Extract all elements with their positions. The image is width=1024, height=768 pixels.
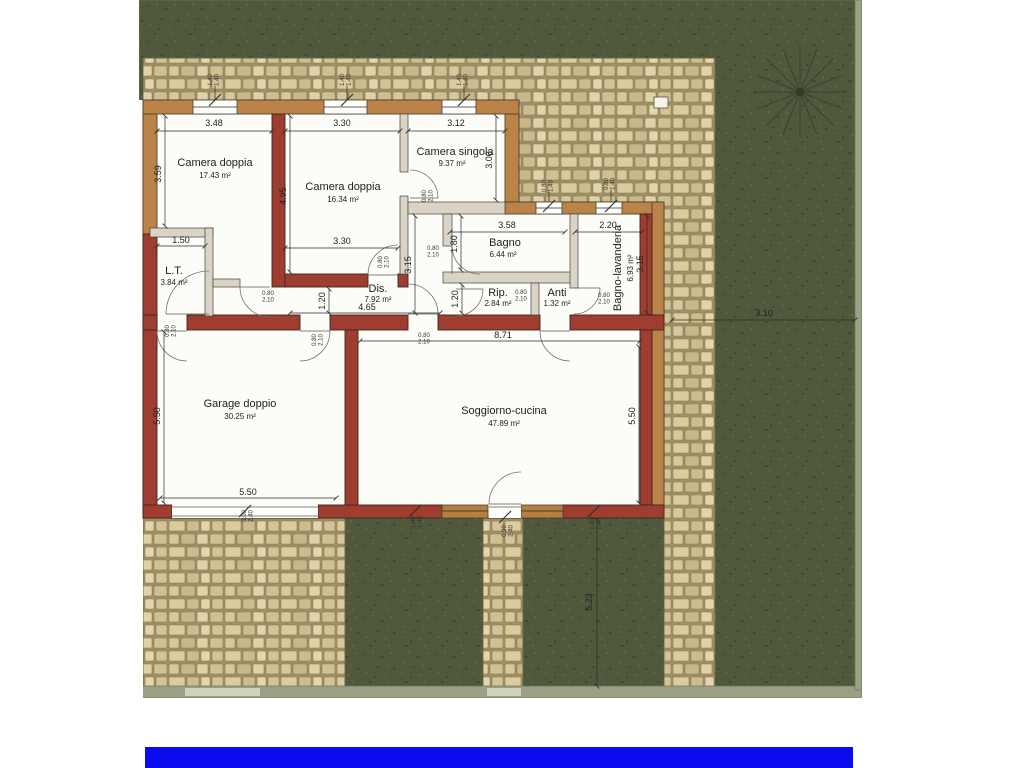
room-dis: Dis. [369, 283, 388, 295]
svg-text:1.40: 1.40 [457, 74, 463, 86]
room-garage: Garage doppio [204, 398, 277, 410]
site-plan-drawing: Camera doppia 17.43 m² Camera doppia 16.… [0, 0, 1024, 768]
svg-text:3.15: 3.15 [635, 255, 645, 273]
room-bagno-lavanderia: Bagno-lavanderia [612, 224, 624, 311]
entrance-opening [489, 505, 521, 518]
svg-text:3.30: 3.30 [333, 118, 351, 128]
svg-text:4.65: 4.65 [358, 302, 376, 312]
svg-text:2.84 m²: 2.84 m² [484, 299, 511, 308]
svg-text:2.40: 2.40 [509, 525, 515, 537]
room-camera-singola: Camera singola [416, 146, 494, 158]
svg-text:2.10: 2.10 [385, 256, 391, 268]
svg-text:3.58: 3.58 [498, 220, 516, 230]
svg-text:3.48: 3.48 [205, 118, 223, 128]
room-rip: Rip. [488, 287, 508, 299]
svg-text:2.10: 2.10 [429, 190, 435, 202]
boundary-gap [185, 688, 260, 696]
svg-text:5.23: 5.23 [584, 593, 594, 611]
svg-text:8.71: 8.71 [494, 330, 512, 340]
svg-text:3.00: 3.00 [484, 151, 494, 169]
svg-text:47.89 m²: 47.89 m² [488, 419, 520, 428]
svg-text:1.40: 1.40 [215, 74, 221, 86]
svg-text:3.84 m²: 3.84 m² [160, 278, 187, 287]
svg-text:6.93 m²: 6.93 m² [626, 254, 635, 281]
margin-right [862, 0, 1024, 768]
svg-text:2.10: 2.10 [515, 297, 527, 303]
svg-text:1.40: 1.40 [418, 516, 424, 528]
svg-text:2.10: 2.10 [172, 325, 178, 337]
svg-text:1.20: 1.20 [317, 292, 327, 310]
svg-text:3.00: 3.00 [242, 510, 248, 522]
svg-text:1.40: 1.40 [590, 518, 596, 530]
tree-icon [754, 46, 846, 138]
svg-text:0.80: 0.80 [262, 291, 274, 297]
svg-text:9.37 m²: 9.37 m² [438, 159, 465, 168]
svg-text:0.80: 0.80 [427, 246, 439, 252]
svg-text:1.50: 1.50 [172, 235, 190, 245]
svg-text:0.80: 0.80 [378, 256, 384, 268]
svg-text:1.40: 1.40 [347, 74, 353, 86]
room-soggiorno: Soggiorno-cucina [461, 405, 547, 417]
site-boundary-right [855, 0, 862, 690]
svg-text:3.59: 3.59 [153, 165, 163, 183]
gate-pillar [654, 97, 668, 108]
svg-text:1.40: 1.40 [597, 518, 603, 530]
svg-text:1.40: 1.40 [340, 74, 346, 86]
stone-paving-path [483, 518, 523, 690]
footer-blue-bar [145, 747, 853, 768]
boundary-gap [487, 688, 521, 696]
svg-text:3.15: 3.15 [403, 256, 413, 274]
svg-text:1.32 m²: 1.32 m² [543, 299, 570, 308]
svg-text:0.80: 0.80 [312, 334, 318, 346]
svg-text:0.80: 0.80 [422, 190, 428, 202]
svg-text:5.50: 5.50 [152, 407, 162, 425]
svg-text:1.40: 1.40 [464, 74, 470, 86]
svg-text:1.40: 1.40 [549, 180, 555, 192]
svg-text:0.80: 0.80 [604, 178, 610, 190]
svg-text:2.10: 2.10 [427, 253, 439, 259]
svg-text:0.80: 0.80 [418, 333, 430, 339]
svg-text:6.44 m²: 6.44 m² [489, 250, 516, 259]
svg-text:30.25 m²: 30.25 m² [224, 412, 256, 421]
svg-text:17.43 m²: 17.43 m² [199, 171, 231, 180]
svg-text:0.80: 0.80 [165, 325, 171, 337]
svg-text:0.80: 0.80 [542, 180, 548, 192]
svg-text:2.10: 2.10 [319, 334, 325, 346]
svg-text:3.30: 3.30 [333, 236, 351, 246]
svg-text:2.20: 2.20 [599, 220, 617, 230]
svg-text:1.40: 1.40 [611, 178, 617, 190]
room-lt: L.T. [165, 265, 183, 277]
svg-text:1.40: 1.40 [411, 516, 417, 528]
room-bagno: Bagno [489, 237, 521, 249]
stone-paving-driveway [143, 518, 345, 690]
svg-text:3.12: 3.12 [447, 118, 465, 128]
svg-text:16.34 m²: 16.34 m² [327, 195, 359, 204]
svg-text:4.95: 4.95 [278, 187, 288, 205]
svg-text:2.40: 2.40 [249, 510, 255, 522]
svg-text:0.80: 0.80 [515, 290, 527, 296]
room-camera-doppia-2: Camera doppia [305, 181, 381, 193]
svg-text:1.80: 1.80 [449, 235, 459, 253]
svg-text:0.80: 0.80 [598, 293, 610, 299]
svg-text:2.10: 2.10 [418, 340, 430, 346]
room-camera-doppia-1: Camera doppia [177, 157, 253, 169]
svg-text:2.10: 2.10 [262, 298, 274, 304]
svg-text:5.50: 5.50 [627, 407, 637, 425]
floor-plan-page: Camera doppia 17.43 m² Camera doppia 16.… [0, 0, 1024, 768]
svg-text:0.90: 0.90 [502, 525, 508, 537]
room-anti: Anti [548, 287, 567, 299]
svg-text:2.10: 2.10 [598, 300, 610, 306]
margin-left-lower [0, 100, 143, 698]
svg-text:1.20: 1.20 [450, 290, 460, 308]
svg-text:5.50: 5.50 [239, 487, 257, 497]
svg-text:1.40: 1.40 [208, 74, 214, 86]
svg-text:3.10: 3.10 [755, 308, 773, 318]
